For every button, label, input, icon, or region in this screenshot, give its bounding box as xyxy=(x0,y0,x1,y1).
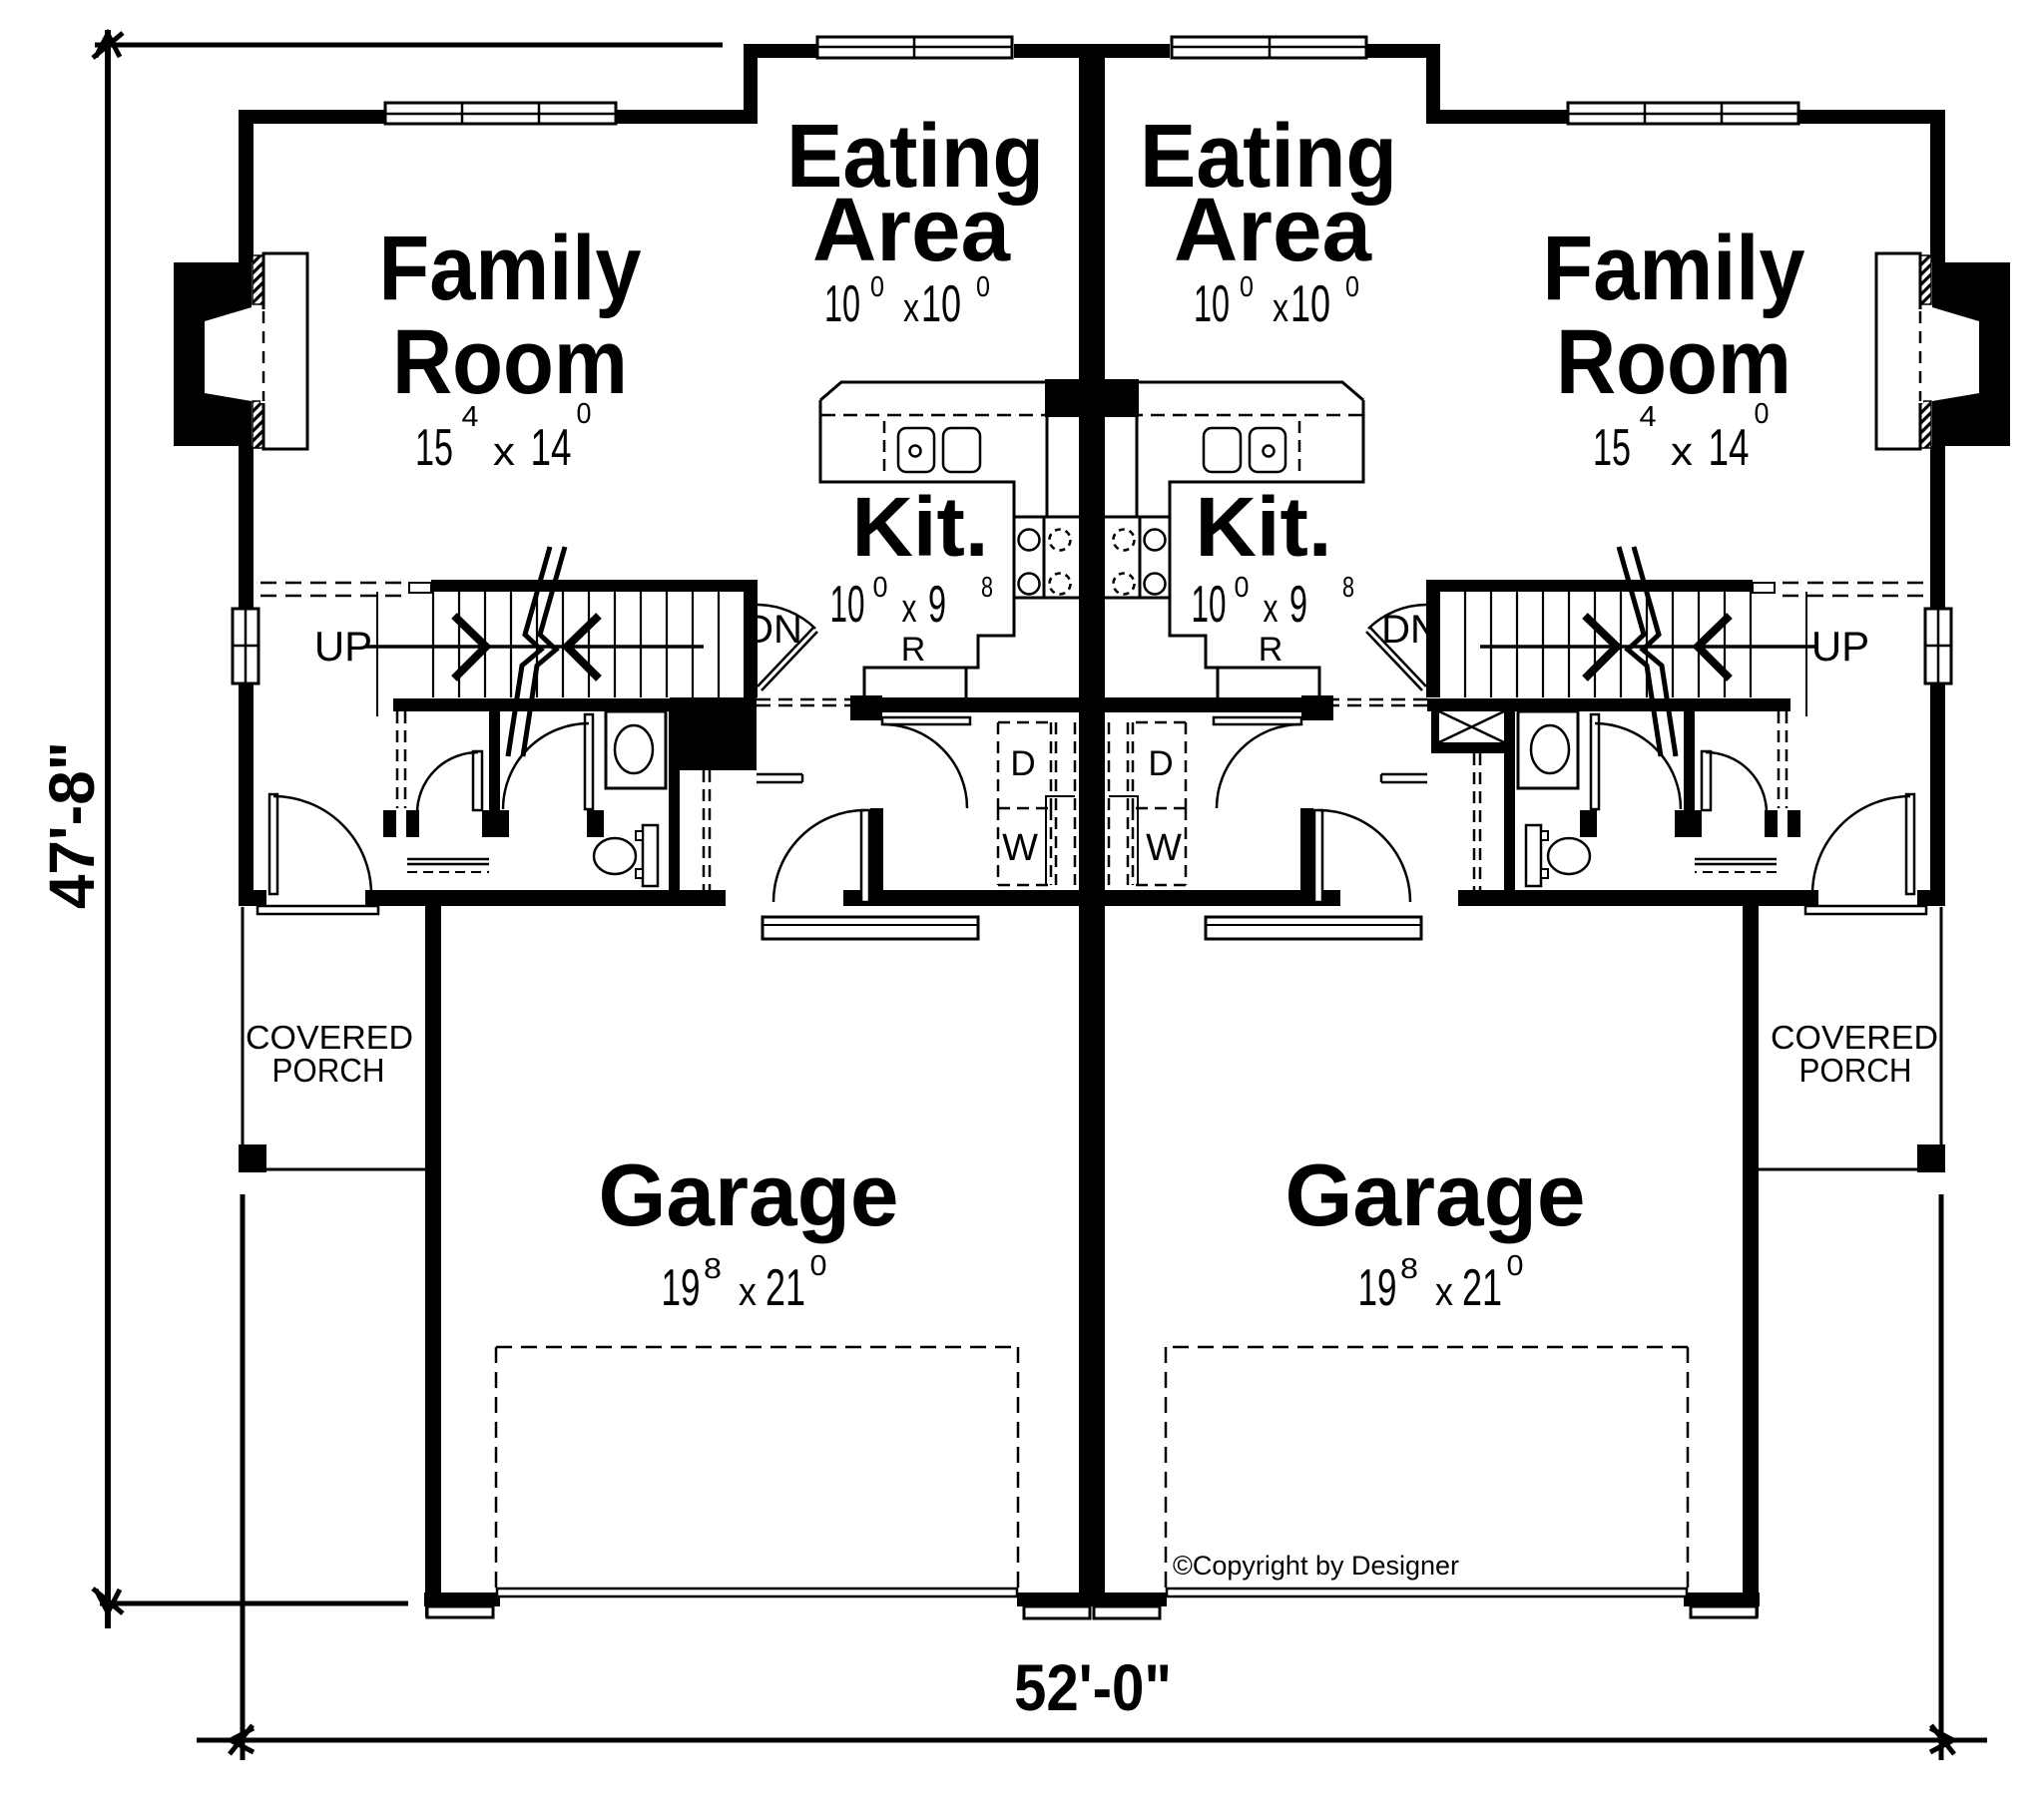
svg-text:8: 8 xyxy=(981,572,993,604)
svg-text:x: x xyxy=(902,587,917,631)
svg-text:D: D xyxy=(1148,744,1173,783)
svg-text:PORCH: PORCH xyxy=(272,1052,385,1089)
svg-text:x: x xyxy=(1671,430,1693,474)
svg-text:0: 0 xyxy=(1240,271,1254,303)
svg-text:COVERED: COVERED xyxy=(246,1019,413,1056)
svg-text:21: 21 xyxy=(766,1259,805,1317)
svg-text:10: 10 xyxy=(824,275,860,333)
svg-text:47'-8": 47'-8" xyxy=(36,741,108,909)
svg-text:UP: UP xyxy=(1811,623,1869,670)
svg-text:D: D xyxy=(1010,744,1035,783)
svg-text:PORCH: PORCH xyxy=(1799,1052,1912,1089)
svg-text:x: x xyxy=(903,286,919,330)
svg-text:0: 0 xyxy=(1345,271,1359,303)
svg-text:14: 14 xyxy=(1709,419,1750,477)
svg-text:4: 4 xyxy=(1640,401,1657,433)
svg-text:15: 15 xyxy=(415,419,453,477)
svg-text:0: 0 xyxy=(1755,398,1770,430)
svg-text:9: 9 xyxy=(928,576,946,634)
svg-text:14: 14 xyxy=(531,419,572,477)
svg-text:Garage: Garage xyxy=(1285,1145,1586,1244)
svg-text:8: 8 xyxy=(704,1253,722,1285)
svg-text:W: W xyxy=(1146,827,1182,869)
svg-text:10: 10 xyxy=(830,576,865,634)
svg-text:Area: Area xyxy=(1174,181,1372,280)
svg-text:R: R xyxy=(1259,631,1283,669)
svg-text:0: 0 xyxy=(976,271,990,303)
svg-text:0: 0 xyxy=(870,271,884,303)
svg-text:W: W xyxy=(1002,827,1038,869)
svg-text:x: x xyxy=(1273,286,1288,330)
svg-text:R: R xyxy=(901,631,926,669)
svg-text:0: 0 xyxy=(577,398,592,430)
svg-text:©Copyright by Designer: ©Copyright by Designer xyxy=(1173,1551,1459,1581)
svg-text:21: 21 xyxy=(1462,1259,1502,1317)
svg-text:UP: UP xyxy=(314,623,372,670)
svg-text:10: 10 xyxy=(1194,275,1230,333)
svg-text:0: 0 xyxy=(810,1250,827,1282)
svg-text:x: x xyxy=(739,1270,757,1314)
svg-text:0: 0 xyxy=(873,572,888,604)
svg-text:4: 4 xyxy=(462,401,479,433)
svg-text:10: 10 xyxy=(1192,576,1227,634)
svg-text:COVERED: COVERED xyxy=(1771,1019,1938,1056)
svg-text:9: 9 xyxy=(1289,576,1307,634)
svg-text:Garage: Garage xyxy=(599,1145,899,1244)
svg-text:Area: Area xyxy=(812,181,1011,280)
svg-text:10: 10 xyxy=(1290,275,1330,333)
svg-text:x: x xyxy=(1435,1270,1453,1314)
svg-text:Room: Room xyxy=(392,311,628,413)
svg-text:x: x xyxy=(1264,587,1278,631)
svg-text:52'-0": 52'-0" xyxy=(1014,1650,1172,1724)
svg-text:0: 0 xyxy=(1235,572,1250,604)
svg-text:Kit.: Kit. xyxy=(852,480,989,574)
svg-text:Family: Family xyxy=(379,218,642,319)
svg-text:8: 8 xyxy=(1342,572,1354,604)
svg-text:19: 19 xyxy=(1358,1259,1397,1317)
svg-text:Family: Family xyxy=(1543,218,1805,319)
svg-text:15: 15 xyxy=(1593,419,1631,477)
svg-text:0: 0 xyxy=(1507,1250,1524,1282)
svg-text:x: x xyxy=(493,430,515,474)
svg-text:19: 19 xyxy=(662,1259,701,1317)
svg-text:Kit.: Kit. xyxy=(1196,480,1332,574)
svg-text:10: 10 xyxy=(921,275,961,333)
svg-text:8: 8 xyxy=(1400,1253,1418,1285)
